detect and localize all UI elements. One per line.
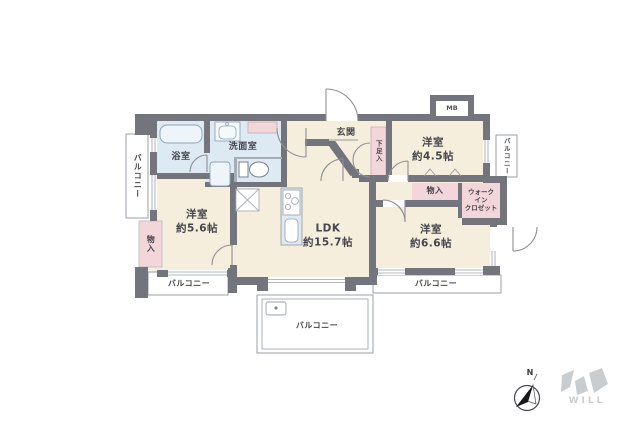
balcony-east-label: バルコニー <box>502 137 510 175</box>
kitchen-icon <box>281 188 302 245</box>
balcony-south-left-label: バルコニー <box>168 279 210 289</box>
bath-label: 浴室 <box>171 152 190 164</box>
pipe-space <box>248 122 277 133</box>
will-logo-text: WILL <box>569 396 606 408</box>
balcony-south-right-label: バルコニー <box>415 279 457 289</box>
wash-basin-icon <box>215 122 240 141</box>
walk-in-closet-label: ウォーク イン クロゼット <box>465 188 498 212</box>
floor-plan: 浴室 洗面室 玄関 下足入 MB 洋室 約4.5帖 洋室 約5.6帖 洋室 約6… <box>0 0 640 427</box>
entrance-label: 玄関 <box>336 128 355 140</box>
kitchen-sink-icon <box>285 219 298 242</box>
balcony-west-label: バルコニー <box>132 154 142 199</box>
ldk-label: LDK 約15.7帖 <box>303 222 353 249</box>
floor-plan-drawing <box>0 0 640 427</box>
will-logo-icon <box>561 368 608 395</box>
east-exterior-door <box>513 227 537 251</box>
shoe-cabinet-label: 下足入 <box>374 140 382 163</box>
bedroom-west-label: 洋室 約5.6帖 <box>176 208 218 235</box>
storage-center-label: 物入 <box>427 186 444 196</box>
balcony-south-center-label: バルコニー <box>296 321 338 331</box>
washroom-label: 洗面室 <box>229 142 258 154</box>
storage-west-label: 物入 <box>145 235 155 253</box>
pillar-box-icon <box>236 189 259 211</box>
meter-box-label: MB <box>446 104 457 112</box>
bathtub-icon <box>160 125 202 143</box>
compass-icon <box>515 374 540 411</box>
bedroom-northeast-label: 洋室 約4.5帖 <box>412 136 454 163</box>
bedroom-southeast-label: 洋室 約6.6帖 <box>410 223 452 250</box>
stove-icon <box>283 190 300 215</box>
toilet-icon <box>239 162 269 177</box>
washer-space-icon <box>210 162 230 186</box>
compass-north-label: N <box>527 368 534 378</box>
